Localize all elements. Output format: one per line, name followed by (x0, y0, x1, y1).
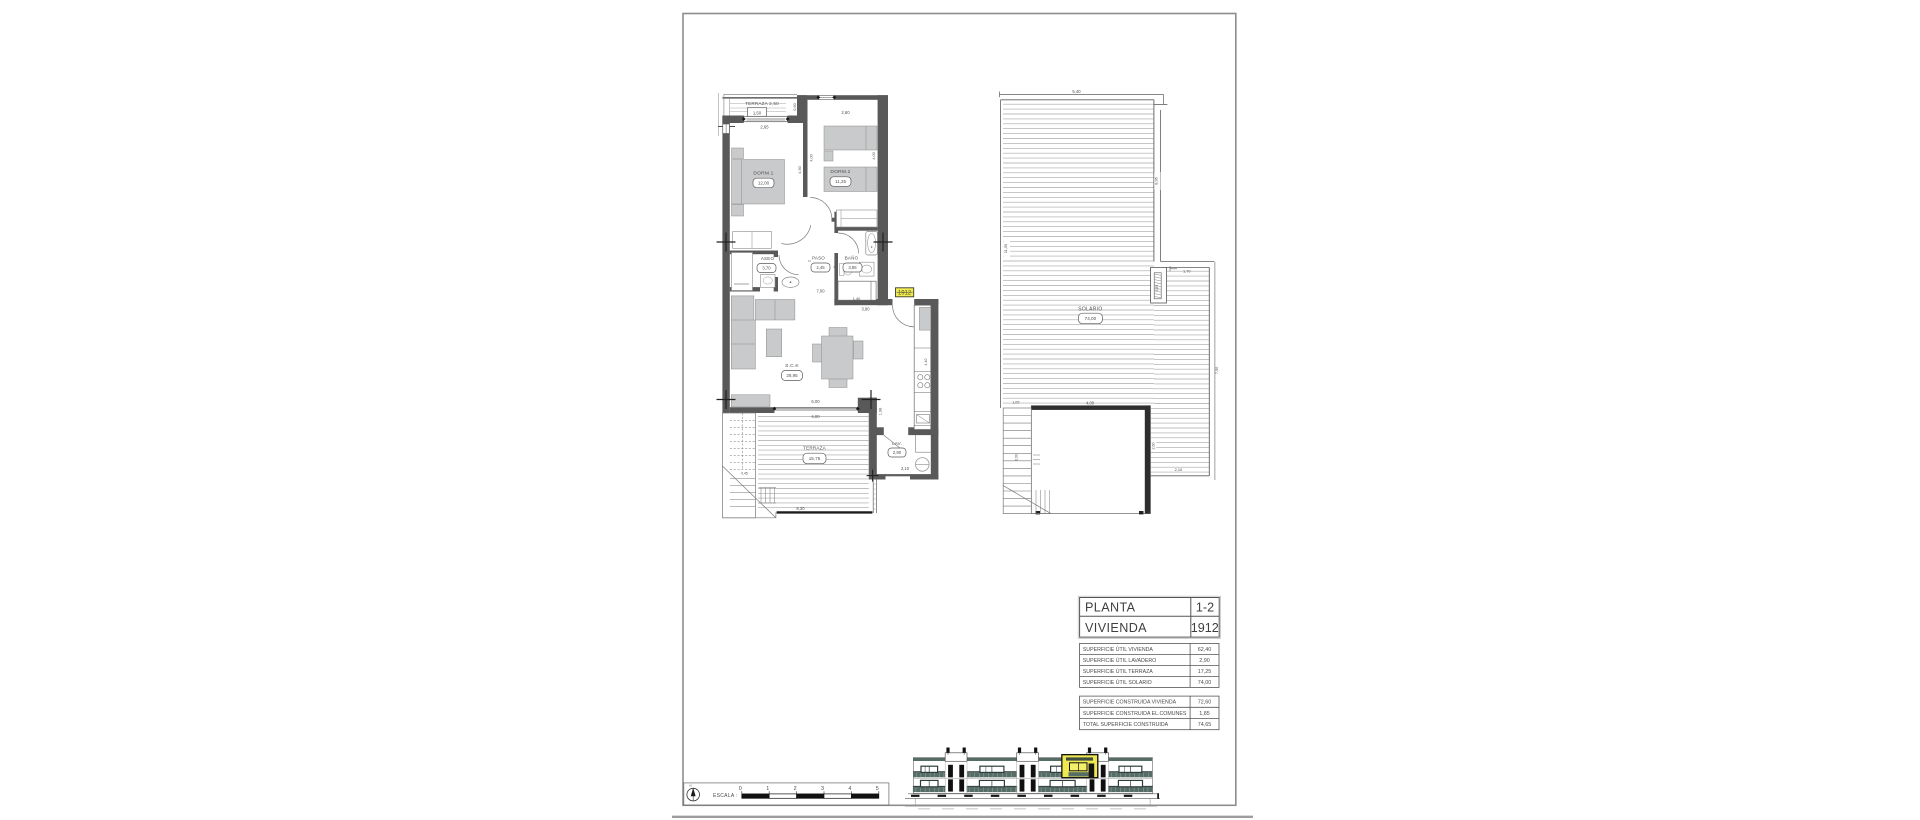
svg-text:3,70: 3,70 (762, 266, 771, 271)
svg-text:15,75: 15,75 (809, 456, 821, 461)
svg-text:PLANTA: PLANTA (1085, 600, 1136, 614)
svg-text:SUPERFICIE CONSTRUIDA VIVIENDA: SUPERFICIE CONSTRUIDA VIVIENDA (1083, 700, 1177, 706)
svg-text:4,50: 4,50 (797, 165, 802, 173)
svg-text:2,60: 2,60 (841, 110, 850, 115)
svg-text:74,65: 74,65 (1198, 722, 1212, 728)
svg-text:4,00: 4,00 (871, 151, 876, 159)
svg-text:5,40: 5,40 (1072, 89, 1081, 94)
svg-text:3,90: 3,90 (862, 306, 871, 311)
svg-text:SUPERFICIE ÚTIL VIVIENDA: SUPERFICIE ÚTIL VIVIENDA (1083, 646, 1154, 653)
svg-text:74,00: 74,00 (1085, 316, 1097, 321)
svg-text:4,40: 4,40 (924, 359, 928, 366)
svg-text:BAÑO: BAÑO (845, 255, 859, 261)
svg-text:0,90: 0,90 (1014, 454, 1018, 461)
svg-text:TERRAZA 2,50: TERRAZA 2,50 (745, 101, 779, 106)
svg-text:SOLARIO: SOLARIO (1078, 306, 1102, 312)
svg-text:1,70: 1,70 (1183, 268, 1191, 273)
svg-text:SUPERFICIE CONSTRUIDA EL.COMUN: SUPERFICIE CONSTRUIDA EL.COMUNES (1083, 711, 1187, 717)
svg-text:2,45: 2,45 (816, 265, 825, 270)
svg-text:VIVIENDA: VIVIENDA (1085, 621, 1147, 635)
svg-text:12,00: 12,00 (758, 181, 770, 186)
svg-text:1-2: 1-2 (1196, 600, 1214, 614)
svg-text:62,40: 62,40 (1198, 647, 1212, 653)
svg-text:8,95: 8,95 (1153, 177, 1158, 185)
svg-text:8,30: 8,30 (796, 506, 805, 511)
svg-text:1,98: 1,98 (878, 408, 882, 415)
svg-text:S.C.K: S.C.K (785, 363, 799, 369)
svg-text:72,60: 72,60 (1198, 700, 1212, 706)
svg-text:0,35: 0,35 (1155, 285, 1159, 291)
svg-text:1,85: 1,85 (1199, 711, 1210, 717)
svg-text:DORM.1: DORM.1 (753, 171, 773, 177)
svg-text:74,00: 74,00 (1198, 680, 1212, 686)
svg-text:5: 5 (876, 786, 879, 792)
svg-text:0: 0 (739, 786, 742, 792)
svg-text:2,65: 2,65 (760, 125, 769, 130)
svg-text:4,00: 4,00 (811, 414, 820, 419)
svg-text:2: 2 (808, 260, 812, 262)
svg-text:DORM.2: DORM.2 (830, 169, 850, 175)
svg-text:1912: 1912 (898, 291, 912, 297)
svg-text:SUPERFICIE ÚTIL LAVADERO: SUPERFICIE ÚTIL LAVADERO (1083, 657, 1156, 664)
svg-text:2,10: 2,10 (901, 466, 910, 471)
svg-text:2,90: 2,90 (1199, 658, 1210, 664)
svg-text:7,50: 7,50 (1214, 366, 1219, 374)
svg-text:ASEO: ASEO (761, 256, 775, 261)
svg-text:4,00: 4,00 (1086, 400, 1095, 405)
svg-text:TERRAZA: TERRAZA (803, 446, 827, 451)
svg-text:28,95: 28,95 (786, 373, 798, 378)
svg-text:2,90: 2,90 (893, 450, 902, 455)
svg-text:6,00: 6,00 (811, 399, 820, 404)
svg-text:2: 2 (794, 786, 797, 792)
svg-text:3,85: 3,85 (848, 265, 857, 270)
svg-text:1912: 1912 (1191, 621, 1219, 635)
svg-text:3: 3 (833, 266, 837, 268)
svg-text:TOTAL SUPERFICIE CONSTRUIDA: TOTAL SUPERFICIE CONSTRUIDA (1083, 722, 1169, 728)
svg-text:11,05: 11,05 (1003, 244, 1008, 253)
svg-text:0,60: 0,60 (793, 103, 797, 110)
svg-text:1,05: 1,05 (1012, 400, 1019, 404)
svg-text:1,50: 1,50 (753, 110, 762, 115)
svg-text:1: 1 (766, 786, 769, 792)
svg-text:17,25: 17,25 (1198, 669, 1212, 675)
svg-text:ESCALA :: ESCALA : (713, 793, 738, 799)
svg-text:SUPERFICIE ÚTIL TERRAZA: SUPERFICIE ÚTIL TERRAZA (1083, 668, 1154, 675)
svg-text:4,00: 4,00 (808, 153, 813, 161)
svg-text:7,00: 7,00 (817, 289, 826, 294)
svg-text:N: N (689, 784, 691, 788)
svg-text:2,10: 2,10 (1175, 467, 1183, 472)
svg-text:SUPERFICIE ÚTIL SOLARIO: SUPERFICIE ÚTIL SOLARIO (1083, 679, 1152, 686)
svg-text:4: 4 (848, 786, 851, 792)
svg-text:1,40: 1,40 (853, 296, 861, 301)
svg-text:0,45: 0,45 (741, 472, 748, 476)
svg-text:2,60: 2,60 (1152, 443, 1156, 450)
svg-text:3: 3 (821, 786, 824, 792)
svg-text:LAV.: LAV. (892, 441, 902, 446)
svg-text:11,25: 11,25 (835, 179, 846, 184)
svg-text:PASO: PASO (812, 256, 825, 261)
